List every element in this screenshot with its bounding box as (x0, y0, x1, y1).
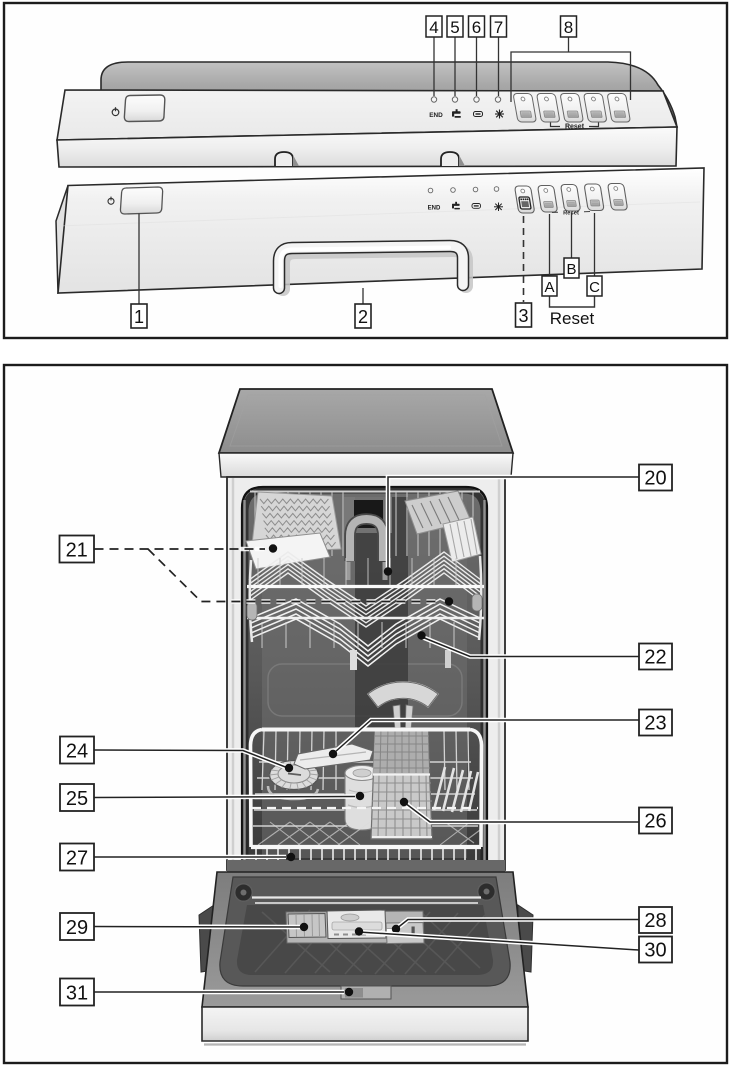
svg-text:30: 30 (644, 940, 666, 962)
svg-text:24: 24 (66, 741, 88, 763)
svg-text:29: 29 (66, 917, 88, 939)
svg-text:25: 25 (66, 788, 88, 810)
svg-text:26: 26 (644, 811, 666, 833)
svg-text:27: 27 (66, 848, 88, 870)
svg-text:7: 7 (494, 18, 503, 37)
svg-text:END: END (428, 206, 441, 212)
svg-text:5: 5 (450, 18, 459, 37)
svg-text:C: C (589, 279, 600, 296)
svg-text:4: 4 (429, 18, 438, 37)
svg-text:3: 3 (518, 306, 528, 326)
svg-text:31: 31 (66, 983, 88, 1005)
svg-text:A: A (544, 279, 554, 296)
svg-text:8: 8 (564, 18, 573, 37)
svg-text:END: END (429, 112, 443, 119)
svg-text:20: 20 (644, 468, 666, 490)
svg-text:1: 1 (134, 307, 144, 327)
svg-text:28: 28 (644, 910, 666, 932)
svg-text:Reset: Reset (550, 309, 595, 328)
svg-text:6: 6 (472, 18, 481, 37)
svg-text:B: B (566, 261, 576, 278)
svg-text:21: 21 (66, 540, 88, 562)
svg-text:22: 22 (644, 647, 666, 669)
svg-text:2: 2 (358, 307, 368, 327)
svg-text:23: 23 (644, 713, 666, 735)
svg-text:Reset: Reset (565, 124, 585, 131)
